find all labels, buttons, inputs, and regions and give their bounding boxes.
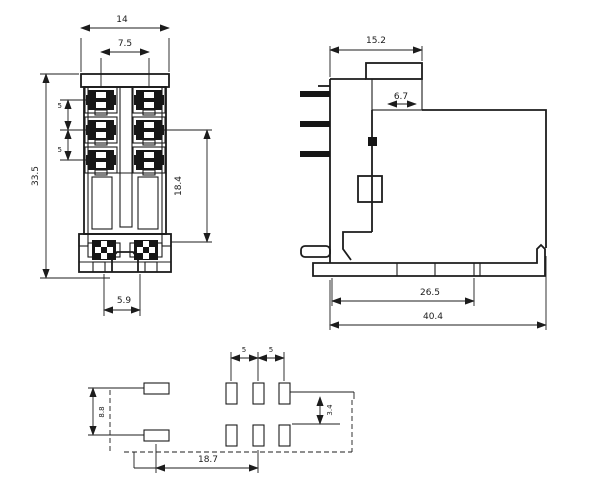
clamp-screw (130, 240, 162, 260)
footprint-pad (279, 383, 290, 404)
dim-front-row-gap-a: 5 (58, 102, 62, 110)
dim-footprint-left-pad-pitch: 8.8 (98, 406, 106, 417)
front-top-cap (81, 74, 169, 87)
side-pin (300, 121, 330, 127)
dim-front-tab-offset: 5.9 (117, 296, 132, 306)
dim-footprint-col-pitch-b: 5 (269, 346, 273, 354)
footprint-pad (279, 425, 290, 446)
side-latch-detail (358, 176, 382, 202)
dim-front-overall-height: 33.5 (31, 166, 41, 186)
footprint-pad (144, 430, 169, 441)
screw-terminal (85, 147, 117, 175)
dim-side-base-length: 26.5 (420, 288, 440, 298)
technical-drawing-page: 14 7.5 5 5 33.5 18.4 5.9 (0, 0, 600, 488)
dim-side-notch-width: 6.7 (394, 92, 408, 102)
screw-terminal (133, 117, 165, 145)
footprint-pad (144, 383, 169, 394)
footprint-view: 5 5 8.8 3.4 18.7 (88, 346, 354, 473)
side-clip (301, 246, 330, 257)
side-base (313, 245, 545, 276)
dim-front-overall-width: 14 (116, 15, 128, 25)
side-pin (300, 91, 330, 97)
side-top-flange (366, 63, 422, 79)
dim-front-row-gap-b: 5 (58, 146, 62, 154)
dim-front-lower-height: 18.4 (174, 176, 184, 196)
footprint-pad (253, 425, 264, 446)
screw-terminal (133, 147, 165, 175)
front-guide-slot-right (138, 177, 158, 229)
clamp-screw (88, 240, 120, 260)
side-pin (300, 151, 330, 157)
dim-front-terminal-pitch: 7.5 (118, 39, 132, 49)
dim-footprint-col-pitch-a: 5 (242, 346, 246, 354)
front-center-channel (120, 87, 132, 227)
dim-side-overall-length: 40.4 (423, 312, 443, 322)
footprint-pad (226, 383, 237, 404)
footprint-pad (226, 425, 237, 446)
front-view: 14 7.5 5 5 33.5 18.4 5.9 (31, 15, 212, 316)
dim-footprint-span: 18.7 (198, 455, 218, 465)
screw-terminal (85, 87, 117, 115)
dim-side-upper-width: 15.2 (366, 36, 386, 46)
side-relay-outline (422, 110, 546, 248)
front-guide-slot-left (92, 177, 112, 229)
dim-footprint-row-gap: 3.4 (326, 404, 334, 416)
screw-terminal (85, 117, 117, 145)
footprint-pad (253, 383, 264, 404)
drawing-svg: 14 7.5 5 5 33.5 18.4 5.9 (0, 0, 600, 488)
side-view: 15.2 6.7 26.5 40.4 (300, 36, 546, 330)
screw-terminal (133, 87, 165, 115)
